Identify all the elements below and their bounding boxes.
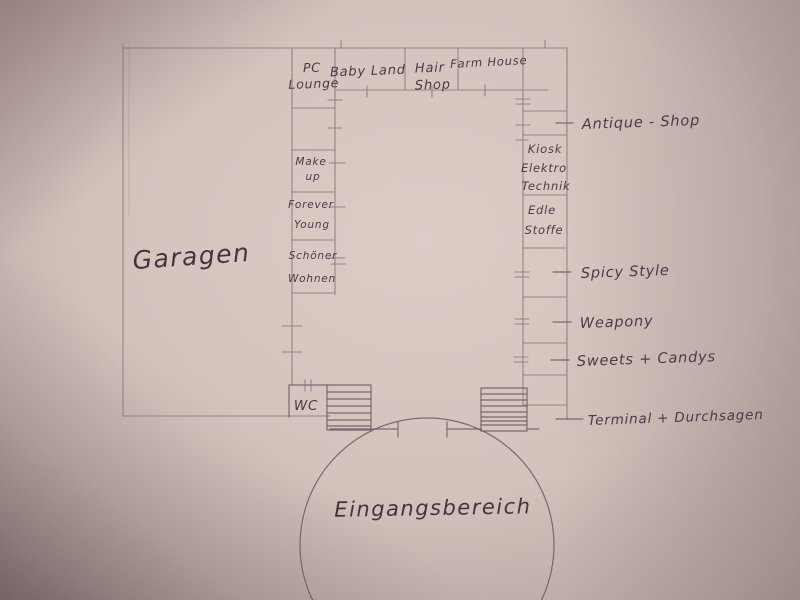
forever-young-label-line1: Forever xyxy=(288,199,334,211)
make-up-label-line2: up xyxy=(306,171,321,183)
pc-lounge-label-line1: PC xyxy=(303,60,321,76)
edle-stoffe-label-line2: Stoffe xyxy=(525,223,564,237)
wc-label: WC xyxy=(294,398,318,414)
schoener-wohnen-label-line1: Schöner xyxy=(289,250,338,262)
hair-shop-label-line2: Shop xyxy=(415,77,451,93)
floor-plan-photo: Garagen PC Lounge Baby Land Hair Shop Fa… xyxy=(0,0,800,600)
entrance-label: Eingangsbereich xyxy=(334,494,532,521)
make-up-label-line1: Make xyxy=(295,156,326,168)
edle-stoffe-label-line1: Edle xyxy=(528,203,556,217)
kiosk-label-line1: Kiosk xyxy=(528,142,563,156)
floor-plan-svg: Garagen PC Lounge Baby Land Hair Shop Fa… xyxy=(0,0,800,600)
hair-shop-label-line1: Hair xyxy=(415,60,446,76)
kiosk-label-line3: Technik xyxy=(521,179,571,193)
spicy-style-label: Spicy Style xyxy=(581,263,670,282)
kiosk-label-line2: Elektro xyxy=(521,161,567,175)
schoener-wohnen-label-line2: Wohnen xyxy=(288,273,336,285)
baby-land-label: Baby Land xyxy=(330,63,406,81)
weapony-label: Weapony xyxy=(580,313,654,332)
forever-young-label-line2: Young xyxy=(294,219,330,231)
